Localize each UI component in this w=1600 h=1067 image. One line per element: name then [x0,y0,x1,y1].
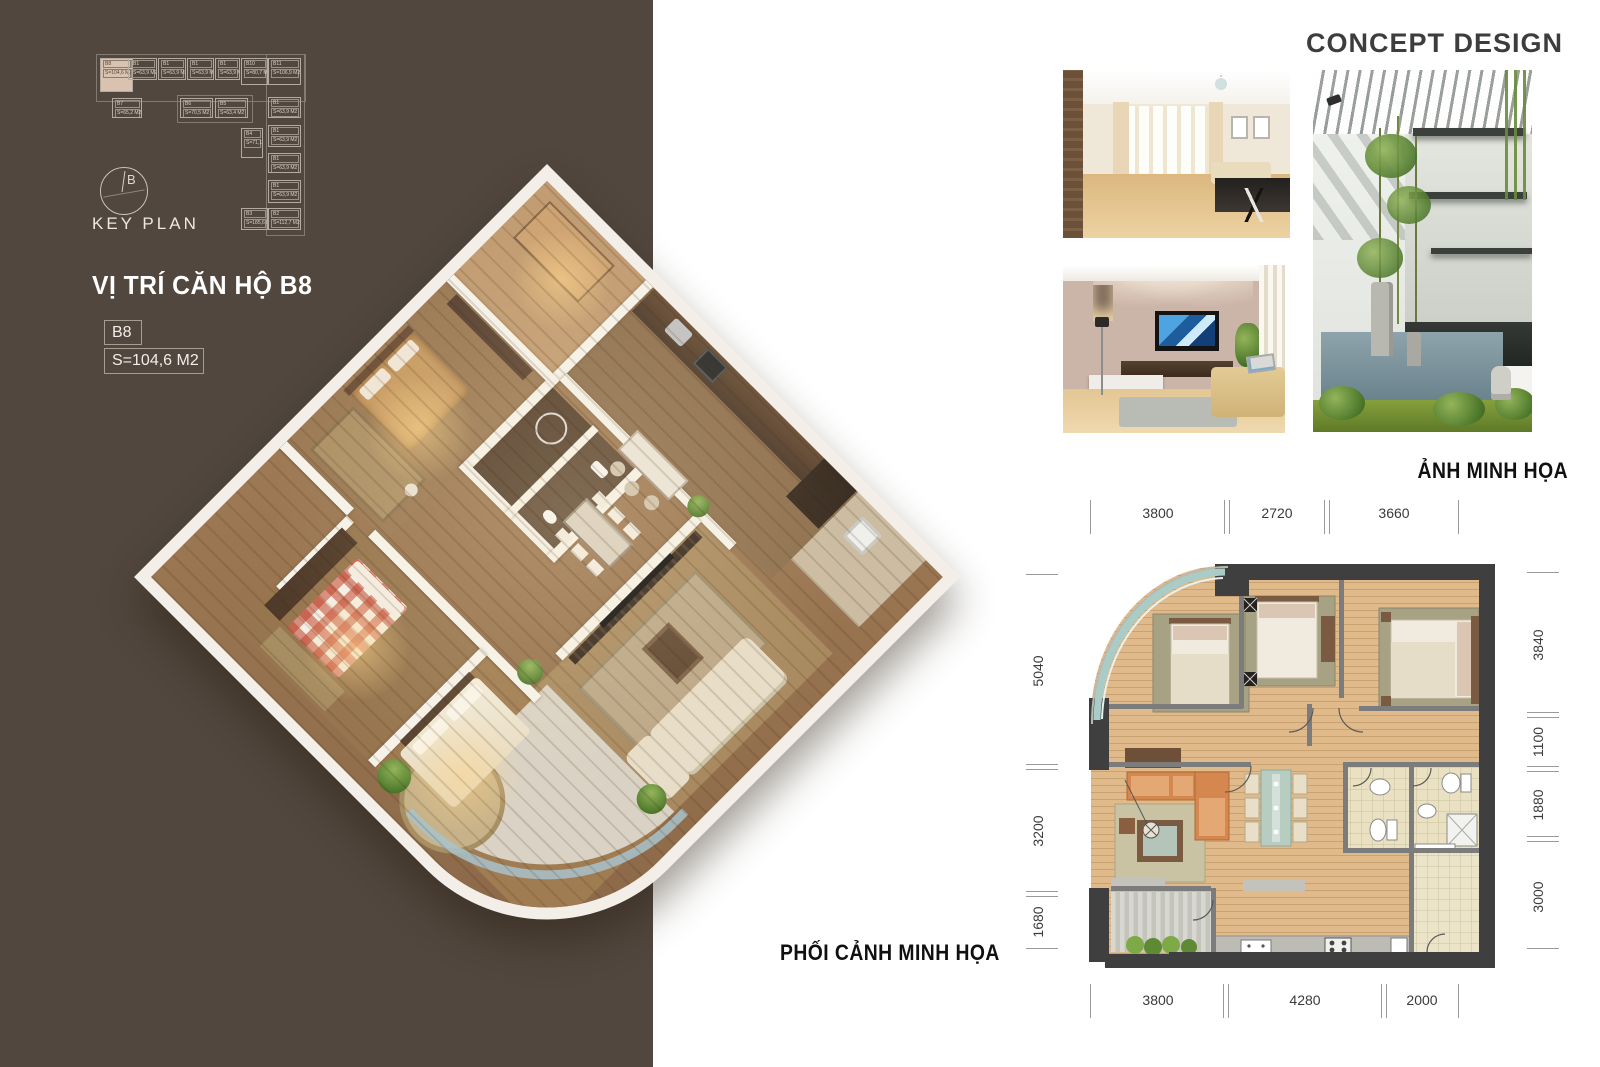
dim-tick [1224,500,1225,534]
concept-design-heading: CONCEPT DESIGN [1306,28,1563,59]
keyplan-unit-b7: B7S=65,2 M2 [112,98,142,118]
photo-curtain [1113,102,1129,182]
dim-label-left: 3200 [1030,796,1046,866]
bar-stool [641,492,662,513]
stone-lantern [1491,366,1511,400]
keyplan-unit-b10: B10S=80,7 M2 [241,58,268,85]
photo-watermark: design [1313,154,1328,432]
bamboo-leaves [1387,186,1431,224]
photo-pendant-lamp [1215,78,1227,90]
stone-pillar [1371,282,1393,356]
photo-table-leg [1239,188,1269,222]
keyplan-unit-b11: B11S=106,9 M2 [268,58,301,85]
dim-tick [1527,948,1559,949]
photo-courtyard: design [1313,70,1532,432]
dim-label-bottom: 3800 [1108,992,1208,1008]
dim-label-bottom: 2000 [1372,992,1472,1008]
dim-label-top: 3800 [1108,505,1208,521]
dim-tick [1527,572,1559,573]
keyplan-unit-b1: B1S=63,9 M2 [268,97,301,118]
tv-screen [1159,315,1215,346]
photo-wall-frame [1231,116,1248,139]
dim-label-right: 3840 [1530,610,1546,680]
dim-tick [1026,574,1058,575]
plan-caption: PHỐI CẢNH MINH HỌA [780,940,1000,966]
bamboo-stem [1415,136,1417,324]
dim-tick [1090,500,1091,534]
photo-living-tv [1063,265,1285,433]
photo-wood-pillar [1063,70,1083,238]
courtyard-shelf [1431,248,1532,254]
keyplan-unit-b1: B1S=63,9 M2 [187,58,214,80]
dim-label-left: 5040 [1030,636,1046,706]
keyplan-unit-b5: B5S=63,4 M2 [215,98,248,118]
floor-lamp [1101,325,1103,395]
photos-caption: ẢNH MINH HỌA [1418,458,1568,484]
dim-label-left: 1680 [1030,887,1046,957]
photo-living-dining [1063,70,1290,238]
plan-interior [1083,566,1483,962]
dim-label-right: 3000 [1530,862,1546,932]
dim-label-bottom: 4280 [1255,992,1355,1008]
keyplan-unit-b1: B1S=63,9 M2 [215,58,240,80]
wall-niche [1093,285,1113,321]
dim-tick [1026,764,1058,765]
dim-tick [1458,500,1459,534]
dim-tick [1090,984,1091,1018]
keyplan-unit-b1: B1S=63,9 M2 [128,58,157,80]
photo-ceiling [1063,265,1285,281]
floor-lamp-shade [1095,317,1109,327]
hanging-vines [1499,70,1532,200]
ottoman [1211,367,1285,417]
photo-window [1125,106,1211,178]
grass-tuft [1433,392,1485,426]
brochure-page: B8S=104,6 M2B1S=63,9 M2B1S=63,9 M2B1S=63… [0,0,1600,1067]
dim-label-right: 1100 [1530,707,1546,777]
keyplan-unit-b6: B6S=70,5 M2 [180,98,213,118]
photo-wall-frame [1253,116,1270,139]
bamboo-leaves [1357,238,1403,278]
floorplan-3d [117,147,953,983]
bamboo-leaves [1365,134,1417,178]
floorplan-3d-body [134,164,960,990]
dim-label-right: 1880 [1530,770,1546,840]
stone-pillar-small [1407,332,1421,366]
dim-tick [1223,984,1224,1018]
dim-label-top: 3660 [1344,505,1444,521]
keyplan-unit-b1: B1S=63,9 M2 [268,125,301,147]
floorplan-2d [1075,558,1497,968]
keyplan-unit-b1: B1S=63,9 M2 [158,58,186,80]
dim-label-top: 2720 [1227,505,1327,521]
